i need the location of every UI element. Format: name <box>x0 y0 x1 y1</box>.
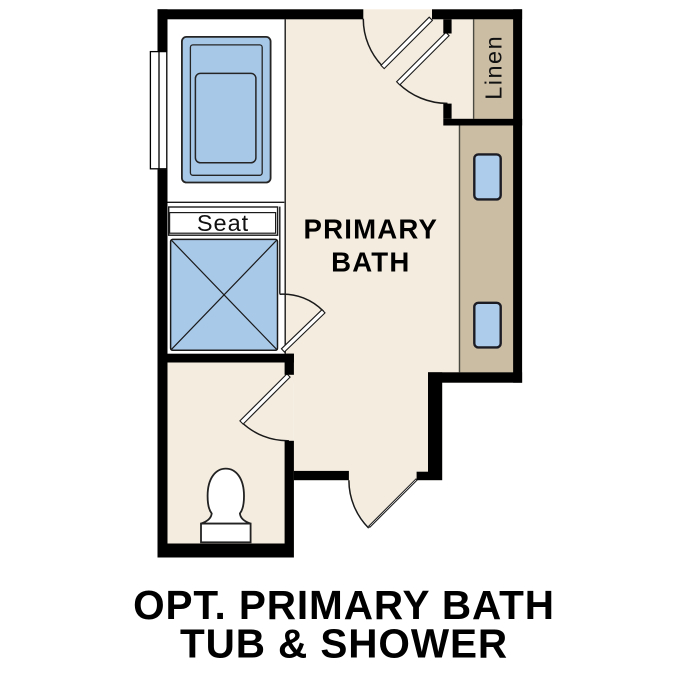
svg-text:Linen: Linen <box>480 35 506 100</box>
svg-text:PRIMARY: PRIMARY <box>303 213 438 244</box>
svg-text:TUB & SHOWER: TUB & SHOWER <box>180 621 508 667</box>
svg-text:Seat: Seat <box>197 210 249 236</box>
svg-text:BATH: BATH <box>331 247 410 278</box>
